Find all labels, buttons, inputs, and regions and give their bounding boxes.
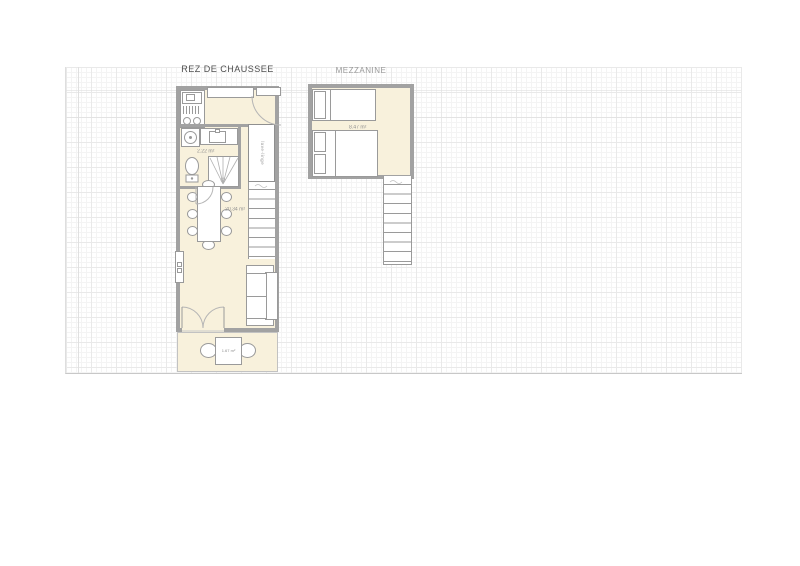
bed-fold-line xyxy=(330,90,331,120)
window-handle-icon xyxy=(177,262,182,267)
title-ground-floor: REZ DE CHAUSSEE xyxy=(176,64,279,74)
sofa-seat xyxy=(246,273,267,297)
pillow-icon xyxy=(314,132,326,152)
bathroom-wall xyxy=(180,186,197,189)
kitchen-sink-basin-icon xyxy=(186,94,195,101)
entry-door-leaf xyxy=(256,87,281,96)
window-icon xyxy=(175,251,184,283)
grid-guide-line xyxy=(78,67,79,373)
chair-icon xyxy=(221,226,232,236)
title-mezzanine: MEZZANINE xyxy=(308,66,414,75)
stair-treads xyxy=(249,189,275,259)
top-counter xyxy=(207,87,254,98)
chair-icon xyxy=(221,192,232,202)
stairs-ground-floor xyxy=(248,182,275,259)
living-area-label: 20.34 m² xyxy=(225,207,245,212)
bed-single-icon xyxy=(312,89,376,121)
mezzanine-area-label: 8.47 m² xyxy=(349,125,366,130)
terrace-area-label: 1.67 m² xyxy=(219,349,239,354)
dining-table xyxy=(197,186,221,242)
stairs-mezzanine xyxy=(383,176,412,265)
floorplan-canvas: REZ DE CHAUSSEE MEZZANINE 2.22 m² 20.34 … xyxy=(0,0,800,566)
cabinet-label: lave-linge xyxy=(259,141,264,165)
terrace-table: 1.67 m² xyxy=(215,337,242,365)
pillow-icon xyxy=(314,154,326,174)
bathroom-tap-icon xyxy=(215,129,220,133)
bed-fold-line xyxy=(335,131,336,176)
pillow-icon xyxy=(314,91,326,119)
washing-machine-dot-icon xyxy=(189,136,192,139)
stair-treads xyxy=(384,184,411,264)
cabinet: lave-linge xyxy=(248,124,275,182)
kitchen-drainer-icon xyxy=(183,106,201,114)
sofa-seat xyxy=(246,296,267,319)
bathroom-area-label: 2.22 m² xyxy=(197,149,214,154)
bed-double-icon xyxy=(312,130,378,177)
window-handle-icon xyxy=(177,268,182,273)
